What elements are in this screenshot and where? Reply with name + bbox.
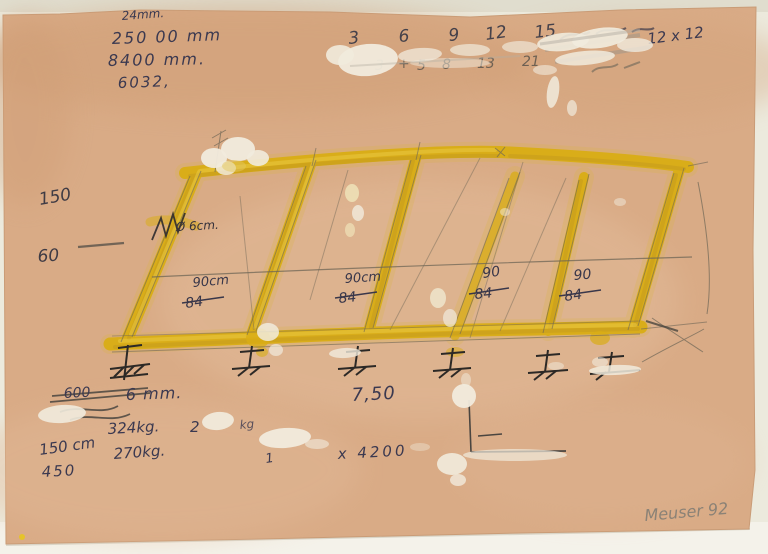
note-24mm: 24mm. bbox=[121, 6, 164, 23]
note-8400mm: 8400 mm. bbox=[108, 49, 206, 70]
note-x4200: x 4200 bbox=[336, 441, 408, 463]
svg-text:90cm: 90cm bbox=[192, 273, 230, 291]
note-750: 7,50 bbox=[351, 383, 396, 406]
sketch-canvas: 24mm. 250 00 mm 8400 mm. 6032, 3 6 9 12 … bbox=[0, 0, 768, 554]
note-60: 60 bbox=[37, 246, 60, 267]
note-qty: 2 bbox=[190, 418, 200, 436]
note-324kg: 324kg. bbox=[107, 417, 159, 438]
note-6mm: 6 mm. bbox=[125, 383, 182, 404]
artwork-photo: 24mm. 250 00 mm 8400 mm. 6032, 3 6 9 12 … bbox=[0, 0, 768, 554]
svg-text:84: 84 bbox=[474, 285, 493, 303]
svg-text:90cm: 90cm bbox=[344, 269, 381, 286]
svg-text:90: 90 bbox=[573, 266, 592, 283]
svg-text:12: 12 bbox=[484, 22, 508, 45]
note-6032: 6032, bbox=[118, 72, 172, 92]
note-250mm: 250 00 mm bbox=[111, 25, 222, 48]
note-270kg: 270kg. bbox=[113, 441, 166, 463]
svg-text:84: 84 bbox=[338, 289, 357, 307]
svg-text:9: 9 bbox=[448, 25, 461, 46]
note-450: 450 bbox=[41, 461, 77, 481]
svg-text:6: 6 bbox=[398, 26, 410, 47]
note-600-struck: 600 bbox=[63, 385, 91, 402]
note-bar-width: Ø 6cm. bbox=[174, 218, 219, 234]
svg-text:90: 90 bbox=[481, 264, 501, 282]
note-qty-unit: kg bbox=[239, 417, 255, 432]
svg-text:84: 84 bbox=[563, 287, 583, 305]
